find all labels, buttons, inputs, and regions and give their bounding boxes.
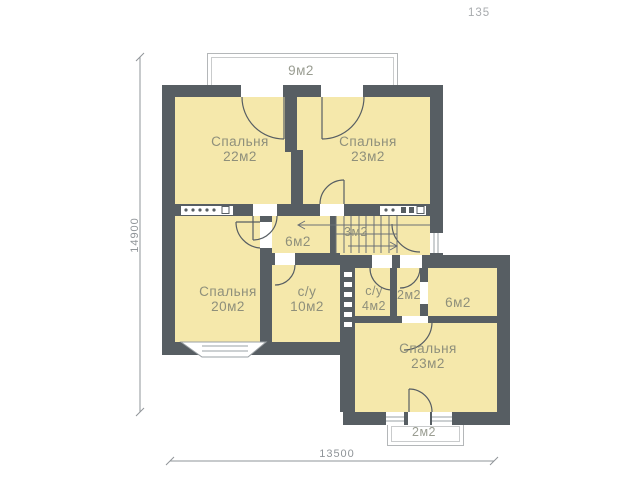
door-opening-bathroom10 (275, 253, 295, 265)
room-label-hall: 6м2 (268, 234, 328, 249)
balcony-bottom-label: 2м2 (394, 425, 454, 440)
wall-hall-bathroom (260, 253, 340, 265)
room-area: 2м2 (384, 288, 434, 303)
room-area: 6м2 (268, 234, 328, 249)
wall-outer-left (162, 85, 175, 355)
room-name: Спальня (195, 134, 285, 149)
balcony-area: 9м2 (271, 63, 331, 78)
room-area: 23м2 (383, 356, 473, 371)
door-opening-bathroom4 (372, 255, 392, 268)
door-opening-closet (400, 255, 422, 268)
dimension-label-horizontal: 13500 (310, 448, 364, 460)
room-name: Спальня (323, 134, 413, 149)
door-opening-bedroom22 (253, 204, 277, 216)
room-label-bedroom-left: Спальня 20м2 (183, 284, 273, 314)
balcony-top-label: 9м2 (271, 63, 331, 78)
shaft-tick (344, 322, 352, 327)
wall-outer-top (162, 85, 443, 97)
door-opening-bedroom23-bottom (402, 316, 428, 323)
room-area: 3м2 (331, 225, 381, 240)
room-label-stairs: 3м2 (331, 225, 381, 240)
room-label-closet: 2м2 (384, 288, 434, 303)
page-number: 135 (468, 7, 490, 19)
room-label-bedroom-top-right: Спальня 23м2 (323, 134, 413, 164)
wall-outer-bottom-left-block (162, 342, 355, 355)
wall-bedroom-divider-top (285, 97, 297, 152)
balcony-area: 2м2 (394, 425, 454, 440)
room-label-storage-right: 6м2 (433, 295, 483, 310)
wall-wing-right (497, 255, 510, 425)
door-opening-bedroom23-top (320, 204, 344, 216)
door-opening-balcony-left (241, 85, 283, 97)
wall-wing-left (340, 255, 355, 412)
room-label-bedroom-bottom-right: Спальня 23м2 (383, 341, 473, 371)
door-opening-balcony-bottom (408, 412, 430, 425)
wardrobe-symbol-right (380, 206, 426, 215)
shaft-tick (344, 272, 352, 277)
window-wing-bottom-right (432, 412, 452, 425)
door-opening-balcony-right (321, 85, 363, 97)
room-area: 6м2 (433, 295, 483, 310)
room-area: 10м2 (277, 299, 337, 314)
window-right-wall (430, 233, 443, 253)
window-wing-bottom-left (386, 412, 404, 425)
room-name: Спальня (183, 284, 273, 299)
floor-plan-page: 135 (0, 0, 640, 480)
room-area: 22м2 (195, 149, 285, 164)
wall-bedroom-divider-bottom (291, 150, 303, 206)
wardrobe-symbol-left (181, 206, 233, 215)
room-name: с/у (277, 284, 337, 299)
room-label-bathroom-main: с/у 10м2 (277, 284, 337, 314)
room-area: 20м2 (183, 299, 273, 314)
room-name: Спальня (383, 341, 473, 356)
room-label-bedroom-top-left: Спальня 22м2 (195, 134, 285, 164)
room-area: 23м2 (323, 149, 413, 164)
dimension-label-vertical: 14900 (129, 213, 141, 257)
